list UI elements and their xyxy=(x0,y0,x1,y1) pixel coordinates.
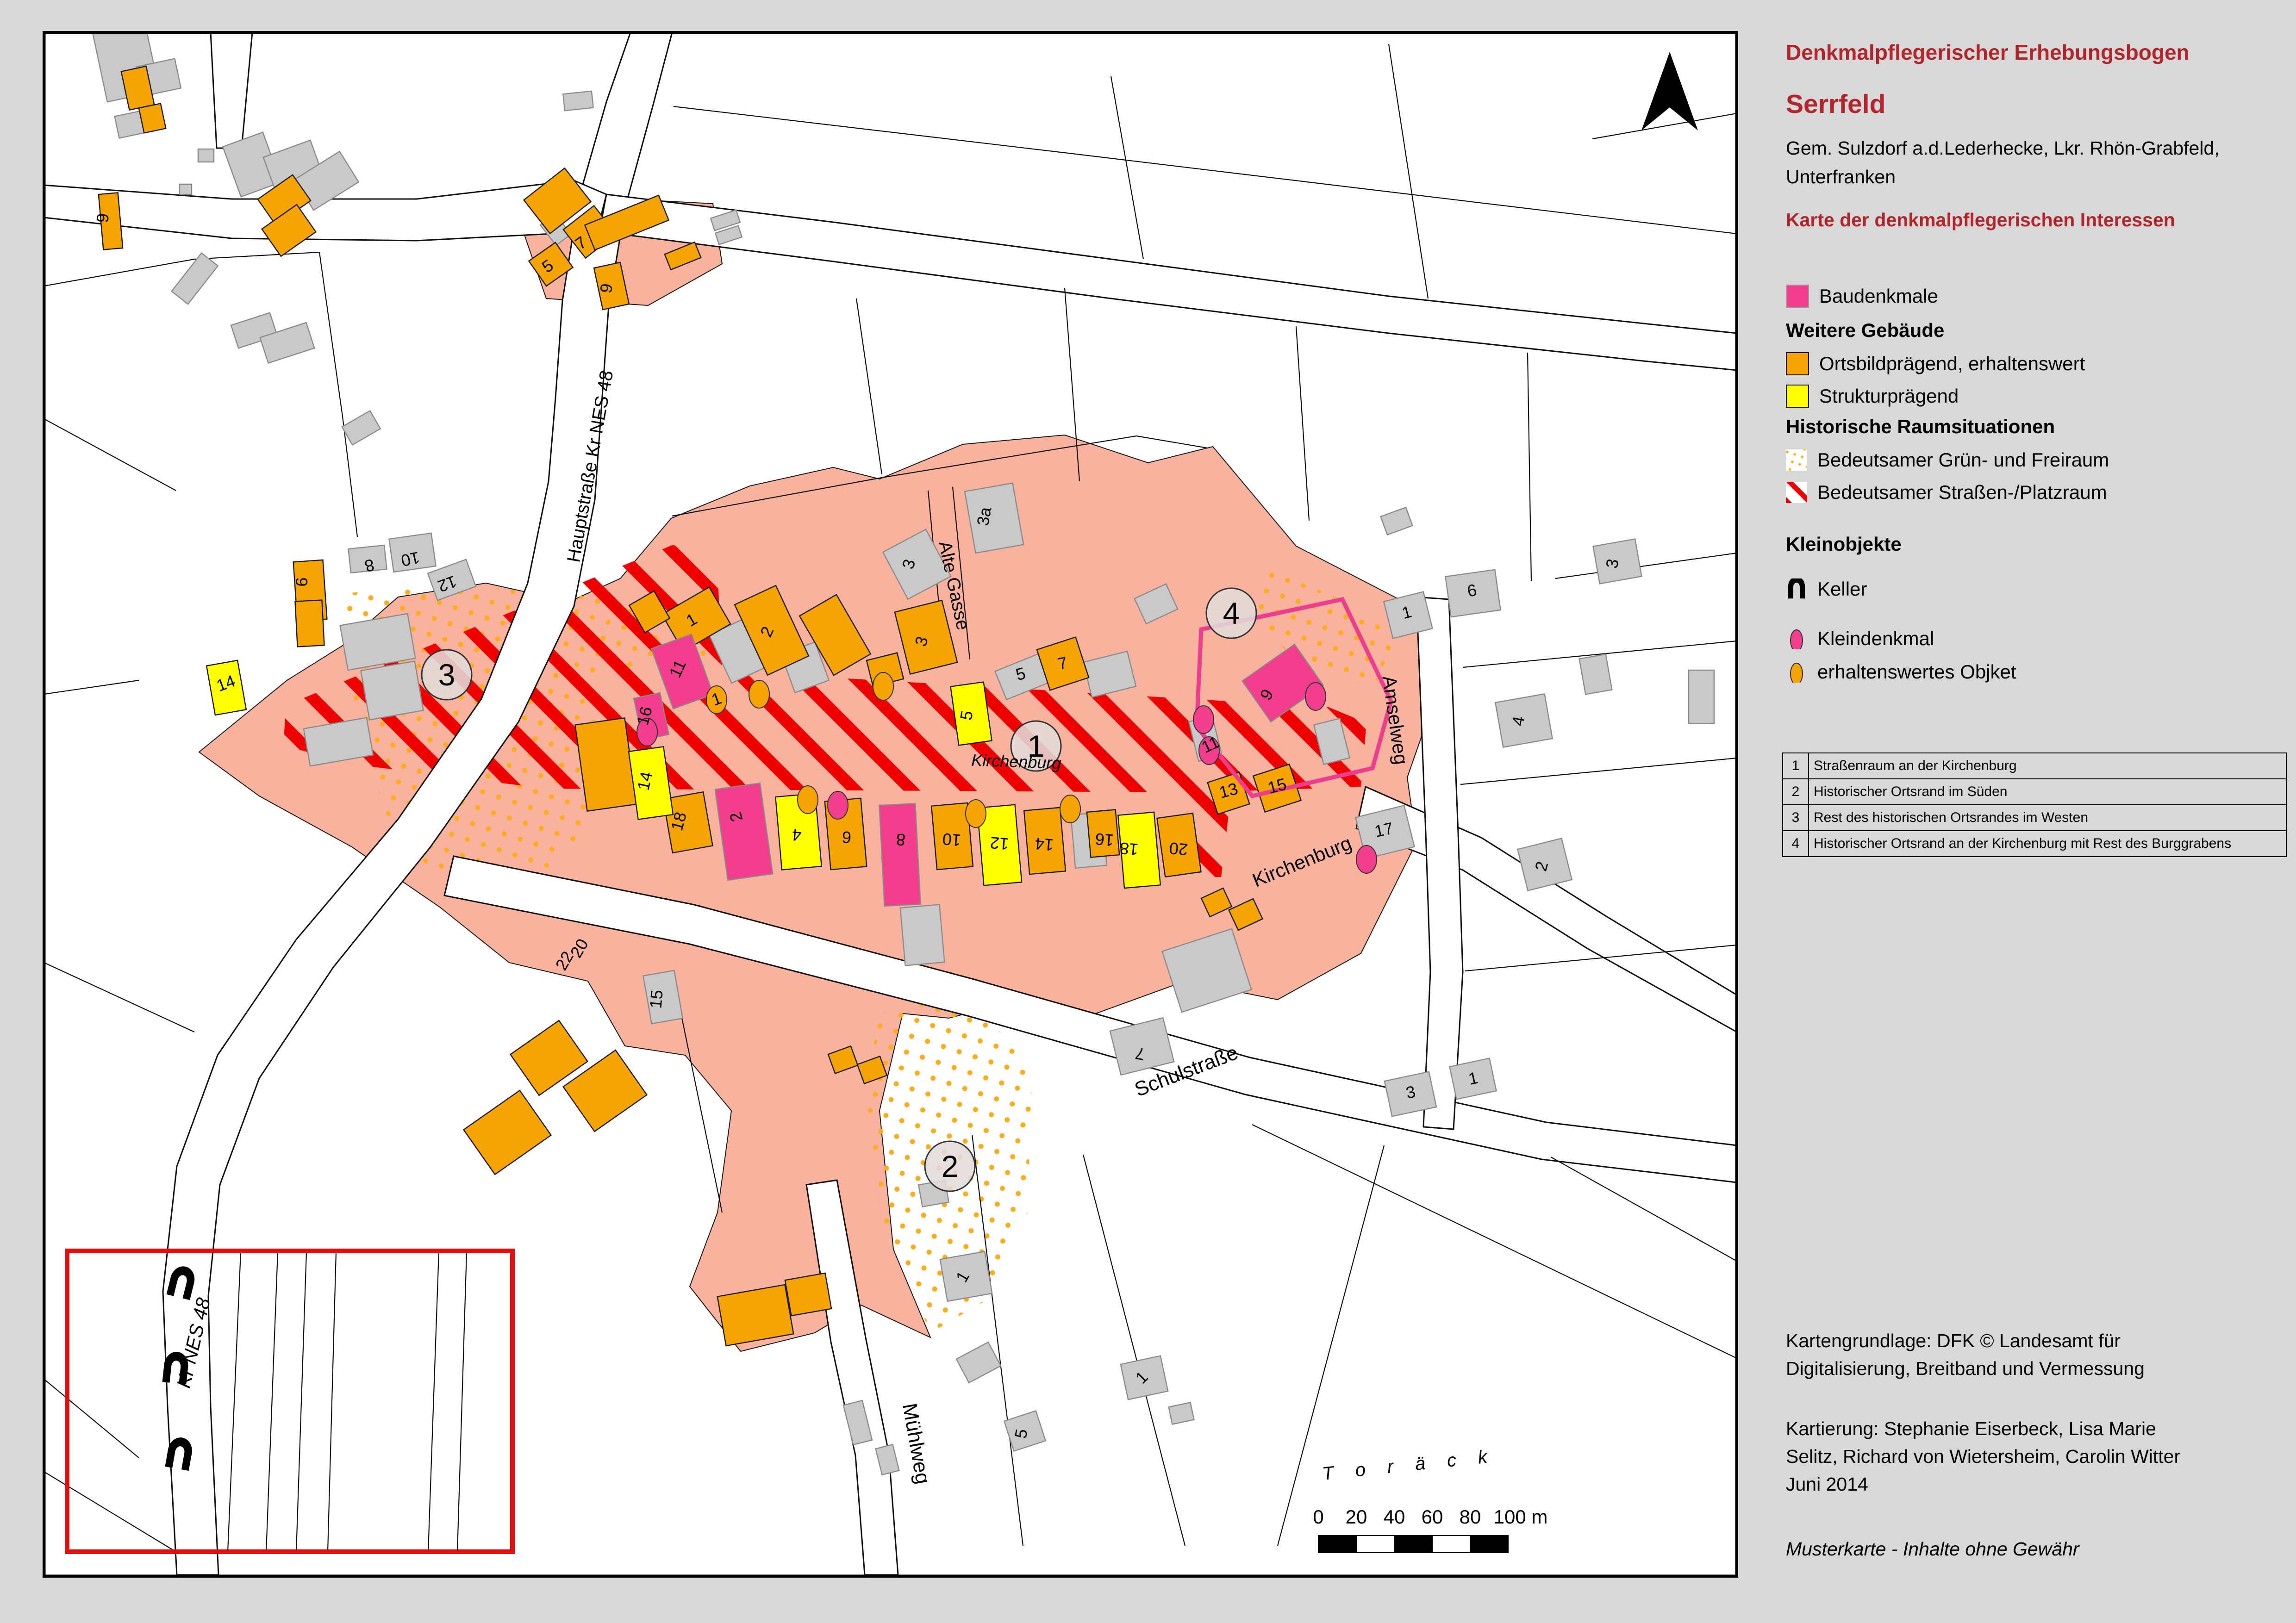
map-canvas: 1 2 3 4 Hauptstraße Kr NES 48 Alte Gasse… xyxy=(43,31,1738,1578)
svg-text:2: 2 xyxy=(942,1149,959,1183)
legend-item-erhaltenswert: erhaltenswertes Objket xyxy=(1786,659,2016,685)
credit-line: Digitalisierung, Breitband und Vermessun… xyxy=(1786,1355,2145,1383)
svg-text:20: 20 xyxy=(1346,1506,1367,1528)
table-row: 1 Straßenraum an der Kirchenburg xyxy=(1783,753,2286,779)
street-label: Kirchenburg xyxy=(971,751,1061,773)
svg-text:15: 15 xyxy=(646,989,666,1009)
svg-text:6: 6 xyxy=(292,577,312,587)
svg-text:3: 3 xyxy=(438,658,455,692)
area-marker-table: 1 Straßenraum an der Kirchenburg 2 Histo… xyxy=(1782,752,2287,857)
legend-label: erhaltenswertes Objket xyxy=(1817,661,2016,683)
svg-text:0: 0 xyxy=(1313,1506,1323,1528)
svg-text:60: 60 xyxy=(1422,1506,1443,1528)
legend-item-ortsbildpraegend: Ortsbildprägend, erhaltenswert xyxy=(1786,351,2085,377)
svg-text:14: 14 xyxy=(634,770,656,792)
baudenkmal-swatch-icon xyxy=(1786,285,1809,308)
row-number: 2 xyxy=(1783,779,1809,805)
svg-text:14: 14 xyxy=(1034,834,1054,854)
svg-text:6: 6 xyxy=(841,827,852,847)
credit-line: Kartengrundlage: DFK © Landesamt für xyxy=(1786,1327,2145,1355)
legend-label: Keller xyxy=(1817,578,1867,600)
map-source-credit: Kartengrundlage: DFK © Landesamt für Dig… xyxy=(1786,1327,2145,1383)
legend-header-kleinobjekte: Kleinobjekte xyxy=(1786,533,1902,555)
kleindenkmal-dot-icon xyxy=(1786,628,1807,649)
keller-icon xyxy=(1786,578,1807,600)
area-marker-2: 2 xyxy=(925,1141,975,1191)
legend-label: Baudenkmale xyxy=(1819,285,1938,307)
place-title: Serrfeld xyxy=(1786,89,2258,119)
legend-label: Strukturprägend xyxy=(1819,385,1959,407)
row-text: Straßenraum an der Kirchenburg xyxy=(1809,753,2286,779)
objekt-dot-icon xyxy=(1786,661,1807,683)
svg-text:3a: 3a xyxy=(973,505,995,528)
legend-header-weitere-gebaeude: Weitere Gebäude xyxy=(1786,319,1944,342)
svg-text:4: 4 xyxy=(1223,596,1240,630)
legend-label: Ortsbildprägend, erhaltenswert xyxy=(1819,353,2085,375)
svg-text:17: 17 xyxy=(1373,819,1395,841)
credit-date: Juni 2014 xyxy=(1786,1471,2180,1499)
credit-line: Selitz, Richard von Wietersheim, Carolin… xyxy=(1786,1443,2180,1471)
ortsbild-swatch-icon xyxy=(1786,352,1809,375)
table-row: 3 Rest des historischen Ortsrandes im We… xyxy=(1783,805,2286,831)
municipality-subtitle: Gem. Sulzdorf a.d.Lederhecke, Lkr. Rhön-… xyxy=(1786,134,2258,191)
legend-item-strukturpraegend: Strukturprägend xyxy=(1786,383,1959,409)
svg-text:20: 20 xyxy=(1168,839,1188,859)
struktur-swatch-icon xyxy=(1786,385,1809,408)
credit-line: Kartierung: Stephanie Eiserbeck, Lisa Ma… xyxy=(1786,1415,2180,1443)
legend-label: Bedeutsamer Grün- und Freiraum xyxy=(1817,449,2109,471)
svg-text:8: 8 xyxy=(895,830,906,850)
svg-text:9: 9 xyxy=(93,212,112,224)
svg-text:10: 10 xyxy=(399,548,422,570)
row-text: Rest des historischen Ortsrandes im West… xyxy=(1809,805,2286,831)
svg-text:80: 80 xyxy=(1460,1506,1481,1528)
legend-label: Kleindenkmal xyxy=(1817,628,1934,650)
svg-text:10: 10 xyxy=(942,829,961,850)
doc-type-title: Denkmalpflegerischer Erhebungsbogen xyxy=(1786,40,2258,65)
legend-item-gruenraum: Bedeutsamer Grün- und Freiraum xyxy=(1786,447,2109,473)
row-text: Historischer Ortsrand im Süden xyxy=(1809,779,2286,805)
disclaimer: Musterkarte - Inhalte ohne Gewähr xyxy=(1786,1536,2079,1563)
page: { "header": { "doc_type": "Denkmalpflege… xyxy=(0,0,2296,1623)
table-row: 2 Historischer Ortsrand im Süden xyxy=(1783,779,2286,805)
svg-text:100 m: 100 m xyxy=(1494,1506,1548,1528)
area-marker-4: 4 xyxy=(1206,588,1256,638)
strassenraum-swatch-icon xyxy=(1786,482,1807,503)
legend-item-baudenkmale: Baudenkmale xyxy=(1786,283,1938,309)
row-number: 3 xyxy=(1783,805,1809,831)
area-marker-3: 3 xyxy=(422,650,472,700)
row-number: 4 xyxy=(1783,831,1809,857)
row-number: 1 xyxy=(1783,753,1809,779)
legend-label: Bedeutsamer Straßen-/Platzraum xyxy=(1817,481,2107,504)
svg-text:40: 40 xyxy=(1384,1506,1405,1528)
svg-text:16: 16 xyxy=(1094,829,1114,850)
cartography-credit: Kartierung: Stephanie Eiserbeck, Lisa Ma… xyxy=(1786,1415,2180,1499)
table-row: 4 Historischer Ortsrand an der Kirchenbu… xyxy=(1783,831,2286,857)
svg-text:18: 18 xyxy=(1119,839,1139,859)
map-title: Karte der denkmalpflegerischen Interesse… xyxy=(1786,209,2258,231)
legend-item-keller: Keller xyxy=(1786,568,1867,610)
svg-text:12: 12 xyxy=(989,833,1009,853)
gruenraum-swatch-icon xyxy=(1786,449,1807,471)
legend-item-strassenraum: Bedeutsamer Straßen-/Platzraum xyxy=(1786,479,2107,505)
legend-header-raumsituationen: Historische Raumsituationen xyxy=(1786,416,2055,438)
row-text: Historischer Ortsrand an der Kirchenburg… xyxy=(1809,831,2286,857)
svg-text:4: 4 xyxy=(791,825,802,845)
legend-item-kleindenkmal: Kleindenkmal xyxy=(1786,626,1934,652)
